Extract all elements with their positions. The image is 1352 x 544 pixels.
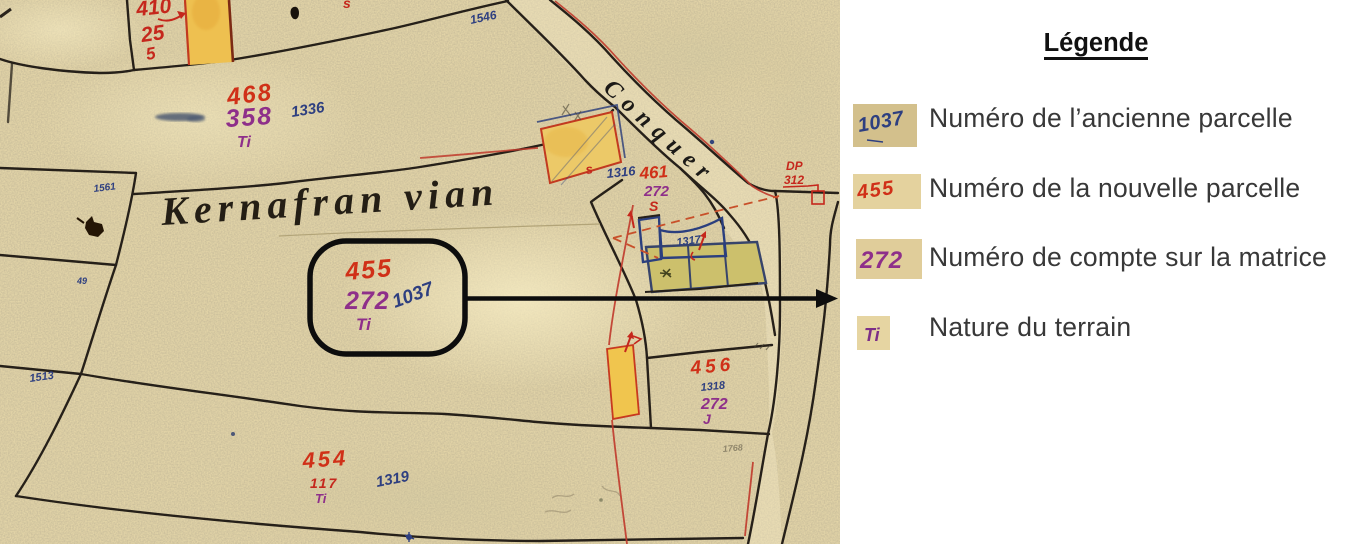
- svg-text:49: 49: [76, 276, 87, 286]
- svg-text:454: 454: [301, 445, 349, 473]
- svg-text:272: 272: [344, 287, 390, 315]
- svg-text:DP: DP: [786, 159, 804, 173]
- svg-text:1768: 1768: [722, 442, 743, 454]
- svg-text:455: 455: [343, 254, 394, 286]
- svg-text:456: 456: [689, 354, 735, 379]
- svg-text:358: 358: [225, 102, 275, 133]
- svg-text:s: s: [343, 0, 351, 11]
- svg-text:1316: 1316: [606, 163, 637, 181]
- svg-text:Ti: Ti: [864, 325, 881, 345]
- svg-text:Ti: Ti: [356, 315, 372, 334]
- svg-text:Ti: Ti: [315, 491, 327, 506]
- svg-text:117: 117: [310, 475, 338, 491]
- svg-text:461: 461: [638, 162, 669, 183]
- svg-text:S: S: [649, 198, 659, 214]
- svg-text:312: 312: [784, 173, 804, 187]
- svg-text:455: 455: [855, 177, 897, 204]
- svg-text:272: 272: [859, 247, 903, 274]
- svg-text:1037: 1037: [856, 107, 906, 137]
- svg-text:Ti: Ti: [237, 134, 251, 151]
- svg-text:J: J: [703, 411, 712, 427]
